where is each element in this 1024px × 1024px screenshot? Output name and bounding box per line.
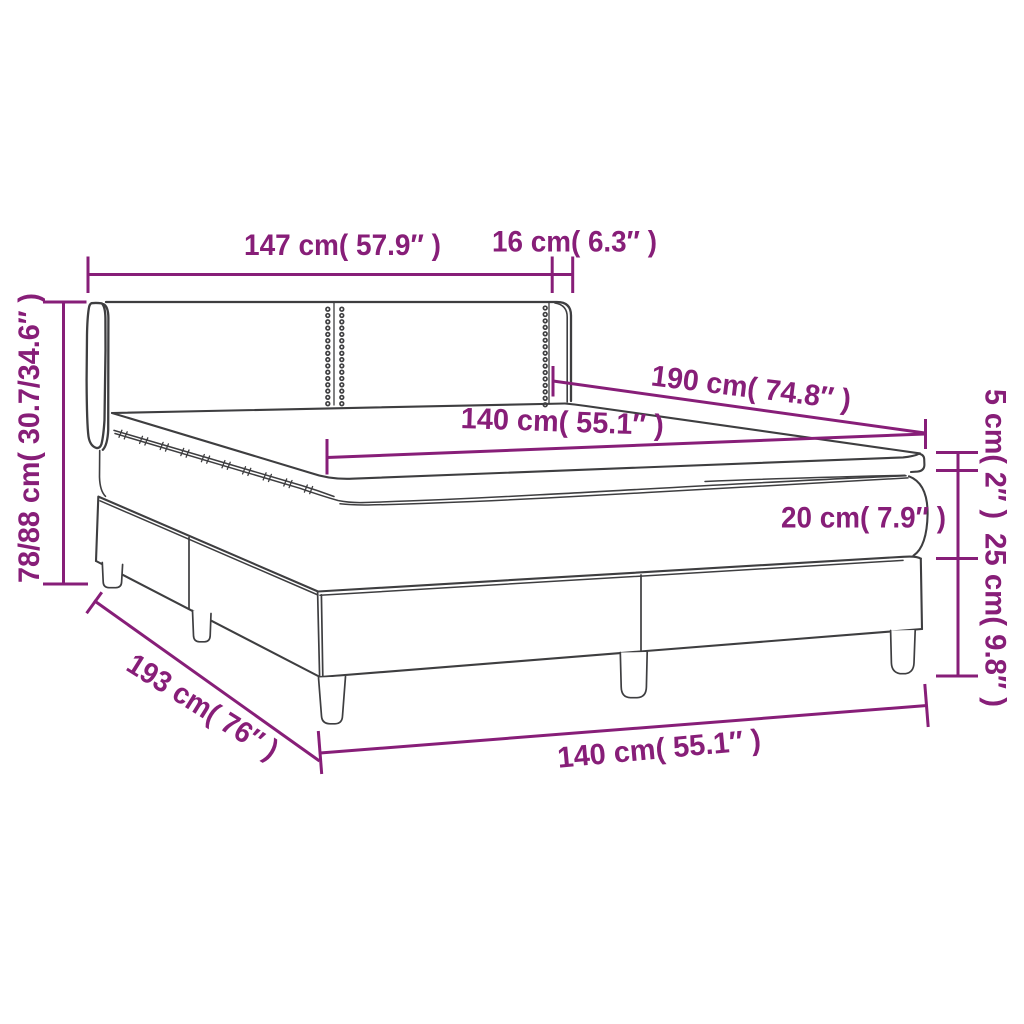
svg-text:78/88 cm( 30.7/34.6″ ): 78/88 cm( 30.7/34.6″ ) [13, 293, 46, 583]
svg-text:16 cm( 6.3″ ): 16 cm( 6.3″ ) [492, 226, 657, 259]
svg-text:147 cm( 57.9″ ): 147 cm( 57.9″ ) [244, 229, 441, 262]
svg-text:20 cm( 7.9″ ): 20 cm( 7.9″ ) [781, 502, 946, 535]
svg-text:25 cm( 9.8″ ): 25 cm( 9.8″ ) [979, 533, 1012, 707]
svg-text:5 cm( 2″ ): 5 cm( 2″ ) [979, 389, 1012, 519]
